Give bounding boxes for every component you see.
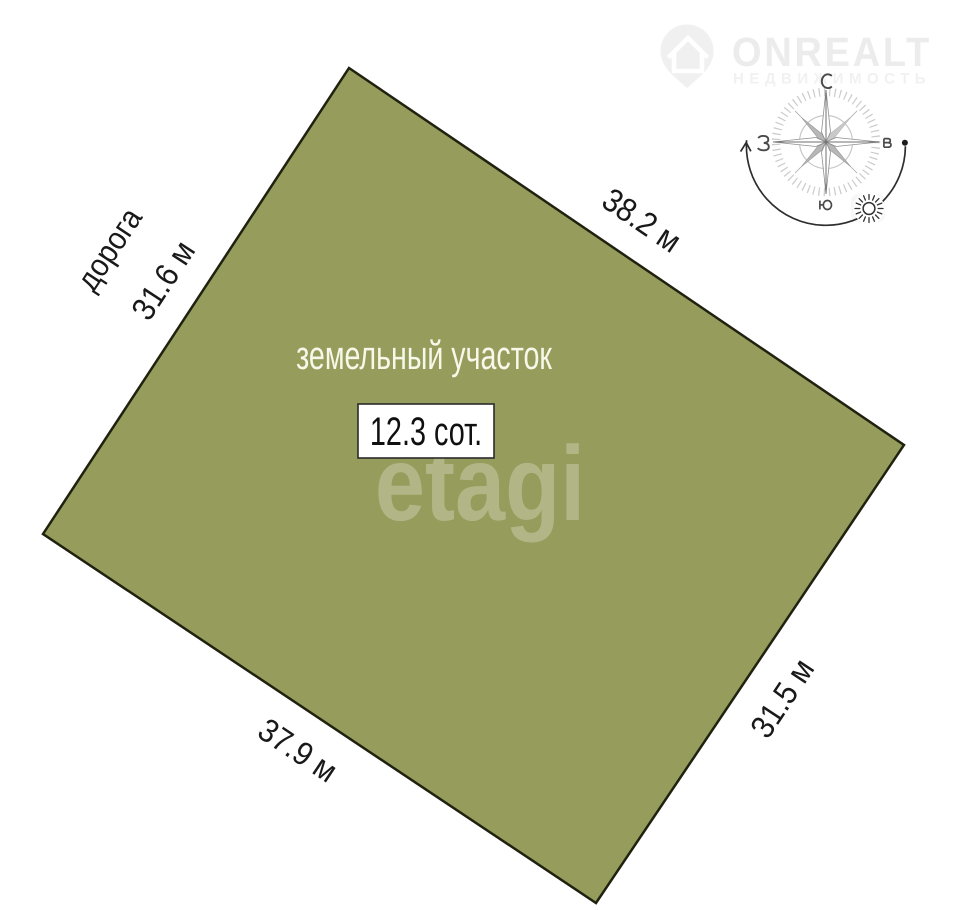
svg-text:ONREALT: ONREALT <box>732 29 932 75</box>
svg-text:12.3 сот.: 12.3 сот. <box>370 410 482 454</box>
svg-text:НЕДВИЖИМОСТЬ: НЕДВИЖИМОСТЬ <box>733 71 931 88</box>
svg-text:земельный участок: земельный участок <box>296 334 552 378</box>
svg-text:дорога: дорога <box>69 201 149 297</box>
